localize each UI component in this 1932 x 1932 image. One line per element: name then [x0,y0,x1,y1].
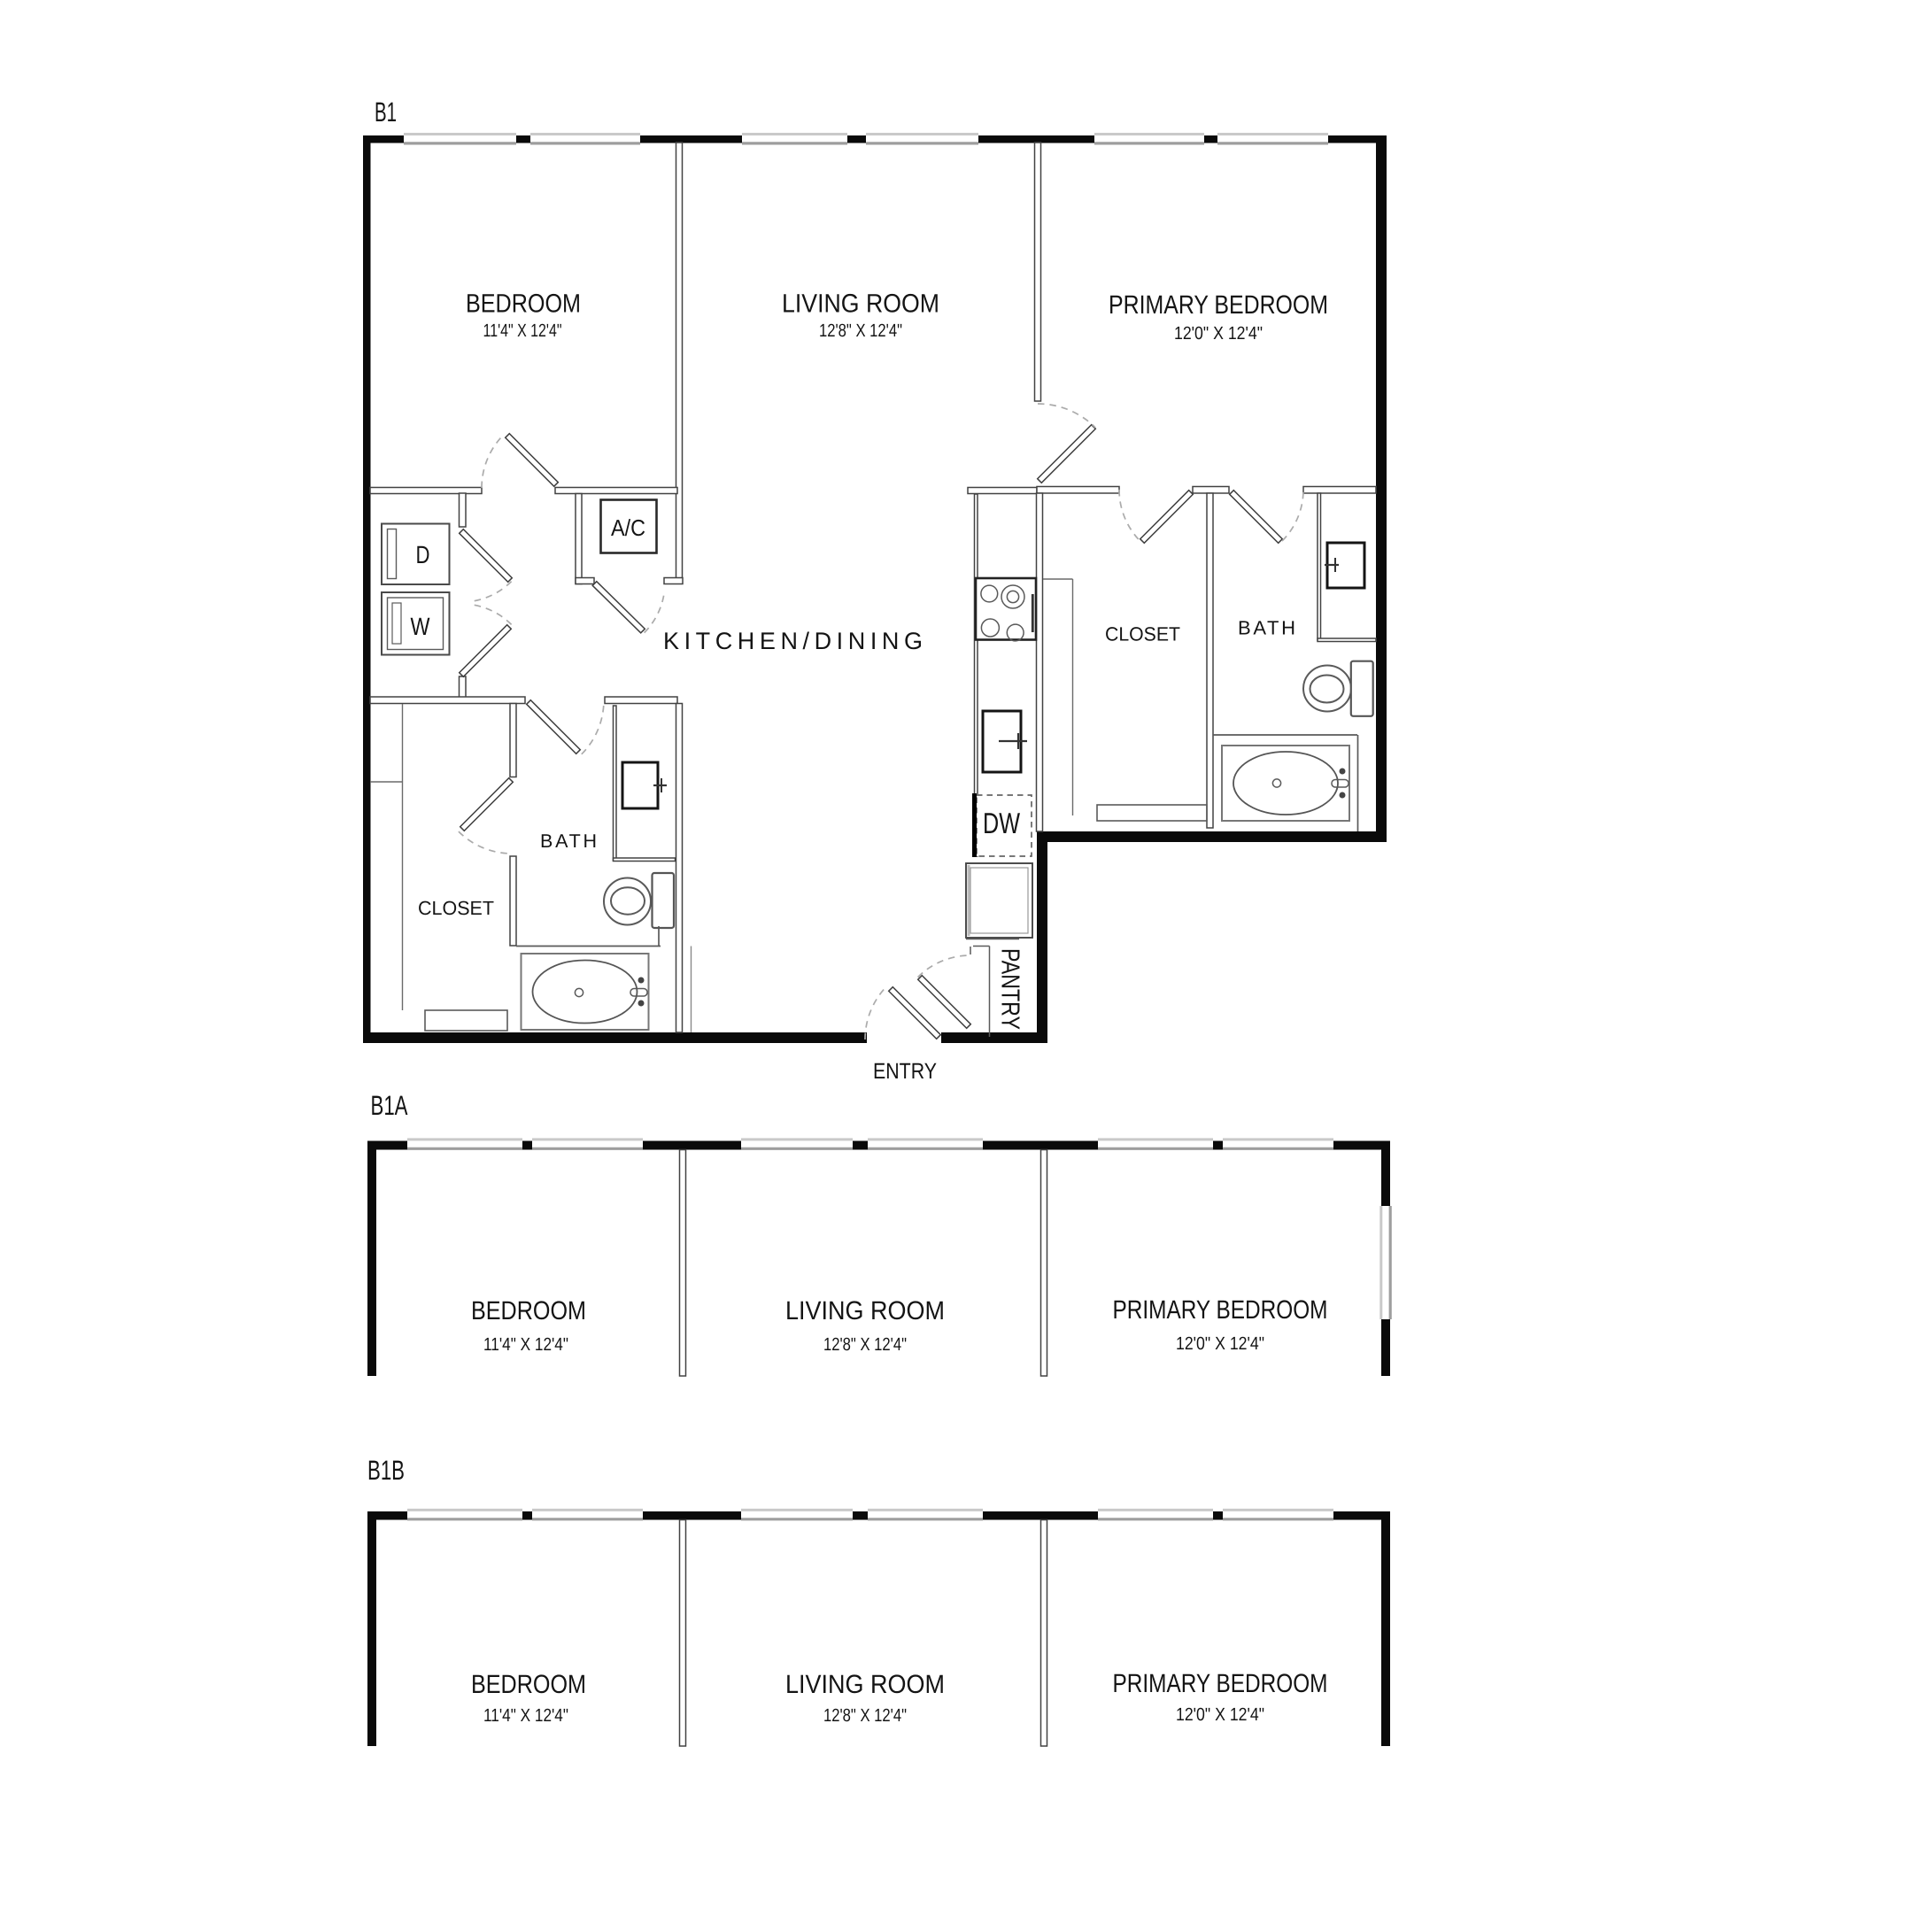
svg-text:D: D [416,541,430,568]
svg-text:BATH: BATH [540,831,597,852]
svg-text:LIVING ROOM: LIVING ROOM [785,1670,945,1699]
svg-text:BEDROOM: BEDROOM [466,290,581,319]
svg-text:12'0" X 12'4": 12'0" X 12'4" [1176,1704,1264,1725]
svg-text:12'0" X 12'4": 12'0" X 12'4" [1174,323,1263,344]
svg-text:LIVING ROOM: LIVING ROOM [782,290,939,319]
svg-text:PRIMARY BEDROOM: PRIMARY BEDROOM [1113,1669,1328,1698]
svg-text:12'8" X 12'4": 12'8" X 12'4" [823,1334,907,1355]
svg-text:B1A: B1A [371,1090,408,1121]
svg-text:ENTRY: ENTRY [873,1059,937,1084]
svg-text:CLOSET: CLOSET [418,897,494,919]
svg-text:11'4" X 12'4": 11'4" X 12'4" [483,321,562,341]
svg-text:KITCHEN/DINING: KITCHEN/DINING [663,628,923,654]
svg-text:12'8" X 12'4": 12'8" X 12'4" [823,1705,907,1726]
svg-text:BATH: BATH [1238,617,1295,639]
svg-text:BEDROOM: BEDROOM [471,1296,586,1325]
svg-text:W: W [411,613,430,640]
svg-text:11'4" X 12'4": 11'4" X 12'4" [483,1334,568,1355]
svg-text:LIVING ROOM: LIVING ROOM [785,1296,945,1325]
svg-text:A/C: A/C [611,514,645,541]
svg-text:PRIMARY BEDROOM: PRIMARY BEDROOM [1109,290,1328,320]
svg-text:PANTRY: PANTRY [996,948,1024,1030]
svg-text:DW: DW [983,807,1021,839]
svg-text:12'8" X 12'4": 12'8" X 12'4" [819,321,902,341]
svg-text:11'4" X 12'4": 11'4" X 12'4" [483,1705,568,1726]
svg-text:B1B: B1B [367,1455,405,1486]
svg-text:CLOSET: CLOSET [1105,623,1180,645]
svg-text:12'0" X 12'4": 12'0" X 12'4" [1176,1333,1264,1354]
svg-text:B1: B1 [375,97,397,128]
svg-text:PRIMARY BEDROOM: PRIMARY BEDROOM [1113,1295,1328,1325]
svg-text:BEDROOM: BEDROOM [471,1670,586,1699]
